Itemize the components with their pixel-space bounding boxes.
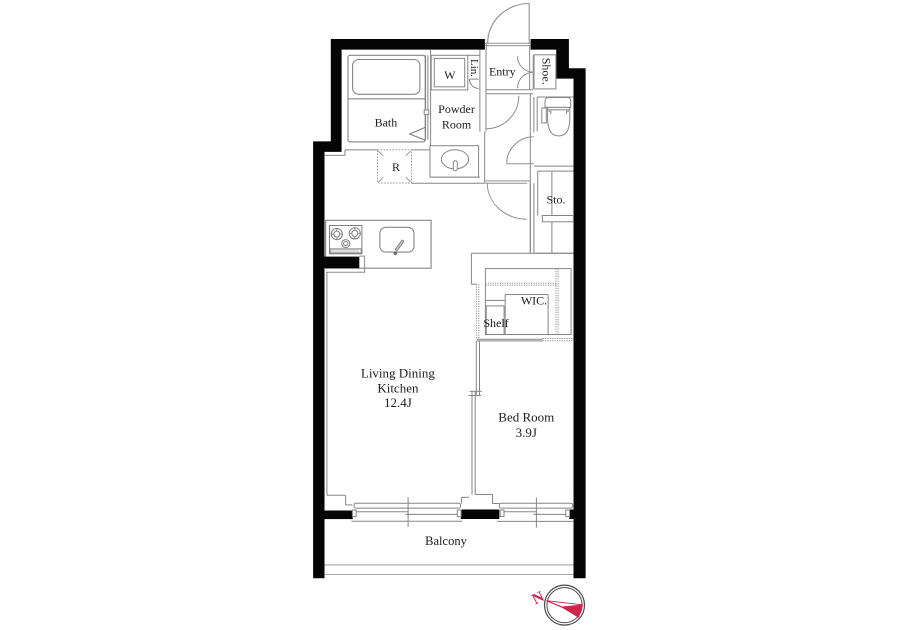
svg-text:Shoe.: Shoe. bbox=[539, 58, 553, 85]
svg-text:12.4J: 12.4J bbox=[384, 395, 412, 410]
svg-text:Entry: Entry bbox=[489, 65, 516, 79]
svg-text:R: R bbox=[392, 160, 400, 174]
svg-text:Bath: Bath bbox=[375, 116, 398, 130]
svg-text:Lin.: Lin. bbox=[468, 59, 480, 77]
svg-text:Living Dining: Living Dining bbox=[361, 365, 436, 380]
svg-text:Powder: Powder bbox=[438, 102, 475, 116]
svg-text:Bed Room: Bed Room bbox=[498, 409, 554, 424]
svg-text:WIC.: WIC. bbox=[521, 293, 547, 307]
svg-text:W: W bbox=[444, 68, 456, 82]
svg-text:Kitchen: Kitchen bbox=[377, 380, 419, 395]
svg-text:Sto.: Sto. bbox=[546, 192, 565, 206]
svg-text:Room: Room bbox=[442, 118, 472, 132]
svg-text:Shelf: Shelf bbox=[483, 316, 508, 330]
svg-text:Balcony: Balcony bbox=[425, 534, 467, 548]
svg-text:3.9J: 3.9J bbox=[516, 425, 537, 440]
